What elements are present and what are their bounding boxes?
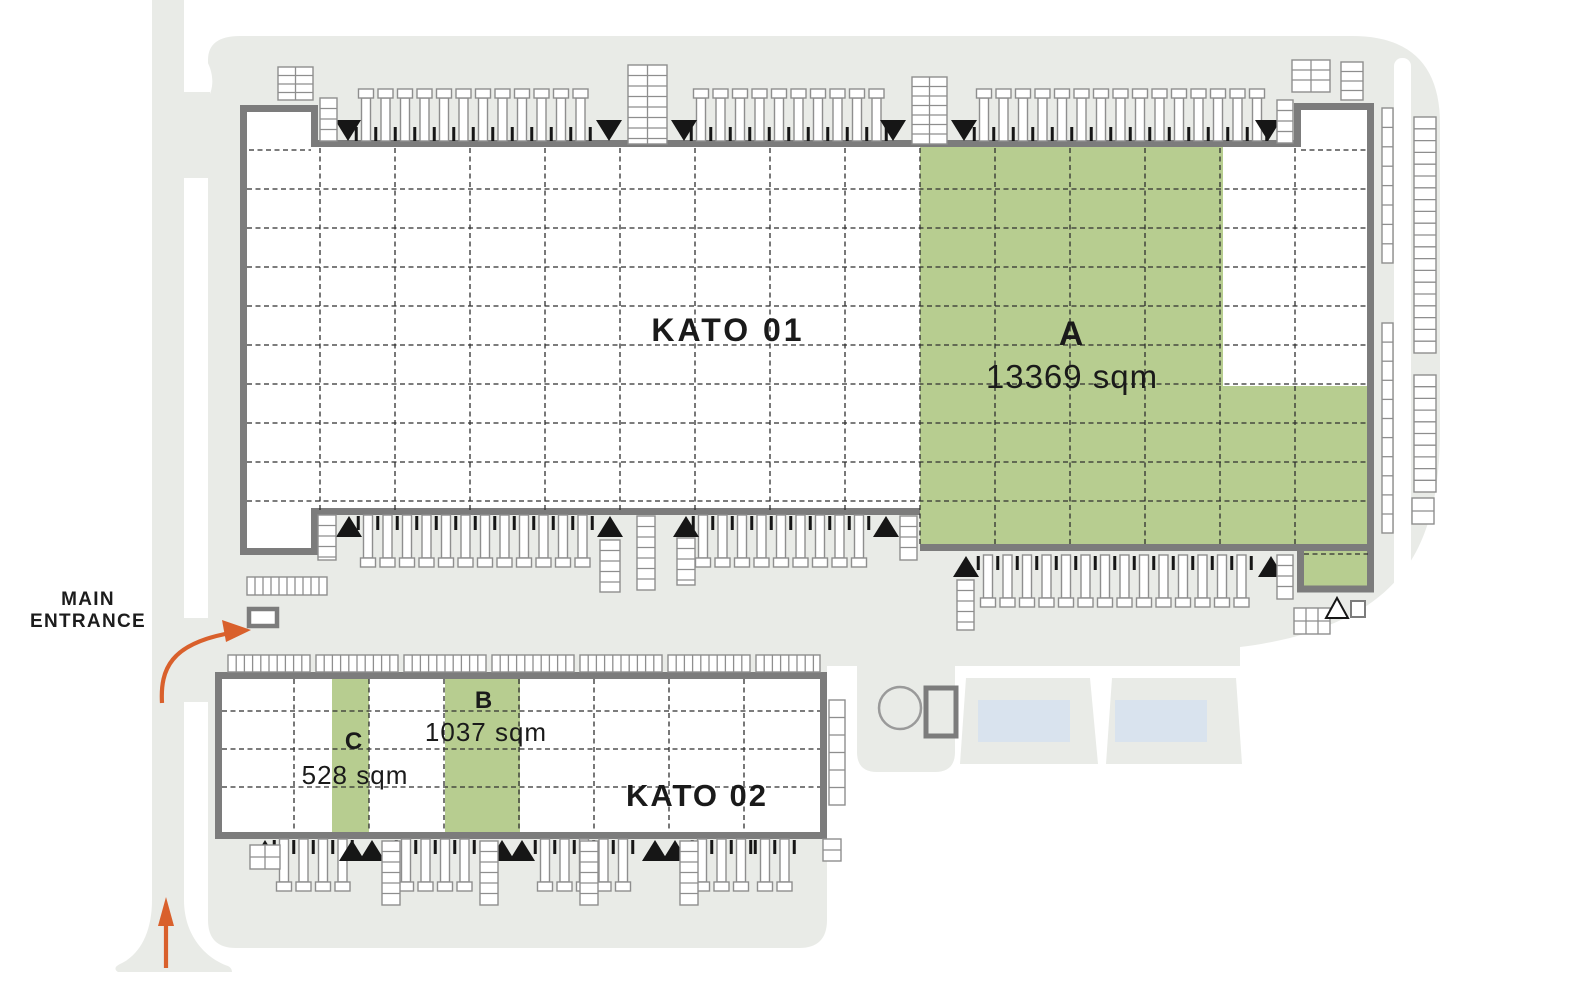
dock-tick-icon (474, 516, 477, 530)
dock-tick-icon (826, 127, 829, 141)
dock-bay-cap-icon (1230, 89, 1245, 98)
parking-hatch (600, 540, 620, 592)
dock-bay-icon (1233, 98, 1242, 141)
dock-tick-icon (1113, 556, 1116, 570)
dock-bay-cap-icon (573, 89, 588, 98)
dock-bay-cap-icon (734, 882, 749, 891)
dock-bay-icon (1077, 98, 1086, 141)
dock-bay-cap-icon (1059, 598, 1074, 607)
dock-bay-icon (1042, 555, 1051, 598)
dock-tick-icon (513, 516, 516, 530)
dock-bay-cap-icon (1113, 89, 1128, 98)
dock-bay-cap-icon (1211, 89, 1226, 98)
dock-bay-cap-icon (852, 558, 867, 567)
dock-bay-icon (578, 515, 587, 558)
dock-bay-cap-icon (1039, 598, 1054, 607)
dock-bay-cap-icon (476, 89, 491, 98)
dock-bay-icon (599, 839, 608, 882)
dock-tick-icon (1191, 556, 1194, 570)
dock-bay-icon (999, 98, 1008, 141)
dock-bay-icon (816, 515, 825, 558)
dock-bay-cap-icon (556, 558, 571, 567)
dock-bay-cap-icon (554, 89, 569, 98)
reservoir-1 (978, 700, 1070, 742)
dock-bay-icon (1062, 555, 1071, 598)
dock-tick-icon (1187, 127, 1190, 141)
dock-bay-cap-icon (735, 558, 750, 567)
dock-tick-icon (748, 127, 751, 141)
dock-bay-cap-icon (616, 882, 631, 891)
dock-bay-icon (1155, 98, 1164, 141)
site-plan: KATO 01 A 13369 sqm B 1037 sqm C 528 sqm… (0, 0, 1574, 998)
dock-bay-cap-icon (811, 89, 826, 98)
entrance-label-line1: MAIN (61, 589, 115, 610)
dock-tick-icon (809, 516, 812, 530)
dock-tick-icon (493, 516, 496, 530)
dock-bay-icon (1218, 555, 1227, 598)
dock-tick-icon (1129, 127, 1132, 141)
unit-c-area-label: 528 sqm (302, 760, 409, 790)
dock-bay-icon (835, 515, 844, 558)
site-plan-canvas: KATO 01 A 13369 sqm B 1037 sqm C 528 sqm… (0, 0, 1574, 998)
dock-bay-icon (421, 839, 430, 882)
dock-bay-cap-icon (575, 558, 590, 567)
dock-tick-icon (754, 840, 757, 854)
dock-bay-cap-icon (696, 558, 711, 567)
dock-bay-cap-icon (1000, 598, 1015, 607)
dock-bay-icon (872, 98, 881, 141)
dock-bay-icon (1023, 555, 1032, 598)
dock-tick-icon (292, 840, 295, 854)
dock-bay-icon (736, 98, 745, 141)
dock-tick-icon (1031, 127, 1034, 141)
dock-tick-icon (992, 127, 995, 141)
dock-bay-icon (1159, 555, 1168, 598)
dock-bay-icon (420, 98, 429, 141)
dock-bay-icon (518, 98, 527, 141)
dock-bay-cap-icon (378, 89, 393, 98)
dock-tick-icon (331, 840, 334, 854)
dock-bay-icon (855, 515, 864, 558)
dock-tick-icon (612, 840, 615, 854)
dock-tick-icon (750, 516, 753, 530)
dock-bay-cap-icon (296, 882, 311, 891)
dock-tick-icon (711, 516, 714, 530)
dock-tick-icon (846, 127, 849, 141)
dock-tick-icon (1172, 556, 1175, 570)
dock-bay-icon (1097, 98, 1106, 141)
dock-bay-cap-icon (1234, 598, 1249, 607)
dock-bay-icon (699, 515, 708, 558)
dock-bay-cap-icon (1016, 89, 1031, 98)
dock-bay-cap-icon (733, 89, 748, 98)
dock-bay-cap-icon (1020, 598, 1035, 607)
dock-tick-icon (996, 556, 999, 570)
dock-tick-icon (770, 516, 773, 530)
dock-bay-cap-icon (1152, 89, 1167, 98)
dock-tick-icon (729, 127, 732, 141)
dock-bay-icon (537, 98, 546, 141)
dock-tick-icon (1133, 556, 1136, 570)
dock-bay-cap-icon (1133, 89, 1148, 98)
unit-a-area-label: 13369 sqm (986, 358, 1158, 395)
dock-tick-icon (828, 516, 831, 530)
dock-bay-icon (1194, 98, 1203, 141)
dock-bay-cap-icon (869, 89, 884, 98)
dock-bay-icon (520, 515, 529, 558)
dock-bay-icon (1101, 555, 1110, 598)
dock-tick-icon (1090, 127, 1093, 141)
dock-bay-cap-icon (752, 89, 767, 98)
dock-bay-icon (479, 98, 488, 141)
dock-bay-cap-icon (457, 882, 472, 891)
dock-tick-icon (511, 127, 514, 141)
dock-bay-icon (383, 515, 392, 558)
corner-square-marker (1351, 601, 1365, 617)
dock-bay-icon (853, 98, 862, 141)
dock-tick-icon (977, 556, 980, 570)
dock-bay-icon (441, 839, 450, 882)
dock-tick-icon (491, 127, 494, 141)
kato-02-label: KATO 02 (626, 778, 768, 813)
dock-tick-icon (374, 127, 377, 141)
dock-tick-icon (1152, 556, 1155, 570)
dock-bay-icon (539, 515, 548, 558)
dock-bay-cap-icon (714, 882, 729, 891)
dock-bay-icon (280, 839, 289, 882)
dock-bay-icon (780, 839, 789, 882)
dock-tick-icon (396, 516, 399, 530)
dock-bay-cap-icon (536, 558, 551, 567)
dock-tick-icon (1109, 127, 1112, 141)
parking-strip (756, 655, 820, 672)
dock-bay-icon (442, 515, 451, 558)
dock-tick-icon (710, 840, 713, 854)
dock-tick-icon (473, 840, 476, 854)
dock-bay-cap-icon (438, 882, 453, 891)
unit-c-label: C (345, 728, 363, 755)
dock-bay-cap-icon (478, 558, 493, 567)
dock-bay-icon (362, 98, 371, 141)
dock-bay-cap-icon (1250, 89, 1265, 98)
dock-bay-cap-icon (1176, 598, 1191, 607)
dock-bay-icon (718, 515, 727, 558)
dock-bay-cap-icon (400, 558, 415, 567)
dock-bay-cap-icon (772, 89, 787, 98)
dock-bay-icon (777, 515, 786, 558)
dock-tick-icon (709, 127, 712, 141)
parking-hatch (1277, 555, 1293, 599)
dock-bay-icon (500, 515, 509, 558)
parking-hatch (677, 538, 695, 585)
dock-bay-cap-icon (419, 558, 434, 567)
dock-bay-icon (557, 98, 566, 141)
dock-bay-icon (717, 839, 726, 882)
dock-bay-cap-icon (361, 558, 376, 567)
dock-tick-icon (569, 127, 572, 141)
dock-bay-icon (737, 839, 746, 882)
dock-tick-icon (730, 840, 733, 854)
dock-tick-icon (573, 840, 576, 854)
dock-bay-cap-icon (359, 89, 374, 98)
dock-bay-icon (1019, 98, 1028, 141)
dock-bay-cap-icon (813, 558, 828, 567)
dock-bay-icon (319, 839, 328, 882)
dock-bay-icon (460, 839, 469, 882)
dock-bay-cap-icon (1078, 598, 1093, 607)
dock-tick-icon (1250, 556, 1253, 570)
dock-bay-icon (761, 839, 770, 882)
dock-bay-icon (1140, 555, 1149, 598)
dock-bay-icon (299, 839, 308, 882)
dock-bay-icon (1058, 98, 1067, 141)
dock-tick-icon (571, 516, 574, 530)
dock-bay-cap-icon (277, 882, 292, 891)
dock-bay-icon (1003, 555, 1012, 598)
dock-bay-icon (1179, 555, 1188, 598)
unit-c[interactable] (332, 679, 369, 832)
dock-bay-icon (403, 515, 412, 558)
dock-tick-icon (1168, 127, 1171, 141)
dock-bay-icon (1175, 98, 1184, 141)
dock-bay-icon (1198, 555, 1207, 598)
dock-bay-icon (619, 839, 628, 882)
dock-bay-cap-icon (418, 882, 433, 891)
dock-bay-cap-icon (437, 89, 452, 98)
dock-tick-icon (357, 516, 360, 530)
dock-bay-icon (833, 98, 842, 141)
dock-tick-icon (553, 840, 556, 854)
dock-bay-icon (1237, 555, 1246, 598)
dock-bay-cap-icon (439, 558, 454, 567)
dock-bay-cap-icon (996, 89, 1011, 98)
dock-bay-cap-icon (1035, 89, 1050, 98)
dock-bay-cap-icon (458, 558, 473, 567)
dock-tick-icon (1074, 556, 1077, 570)
dock-bay-cap-icon (515, 89, 530, 98)
dock-bay-cap-icon (777, 882, 792, 891)
dock-bay-icon (560, 839, 569, 882)
dock-tick-icon (550, 127, 553, 141)
dock-bay-icon (402, 839, 411, 882)
dock-tick-icon (589, 127, 592, 141)
parking-hatch (900, 516, 917, 560)
dock-tick-icon (793, 840, 796, 854)
dock-tick-icon (1070, 127, 1073, 141)
dock-bay-icon (1214, 98, 1223, 141)
dock-tick-icon (1246, 127, 1249, 141)
dock-tick-icon (376, 516, 379, 530)
dock-bay-icon (698, 839, 707, 882)
dock-bay-icon (1120, 555, 1129, 598)
dock-bay-cap-icon (1117, 598, 1132, 607)
dock-tick-icon (1051, 127, 1054, 141)
dock-bay-cap-icon (1137, 598, 1152, 607)
dock-bay-cap-icon (1098, 598, 1113, 607)
entrance-label-line2: ENTRANCE (30, 611, 146, 632)
dock-bay-cap-icon (1055, 89, 1070, 98)
dock-bay-cap-icon (316, 882, 331, 891)
dock-bay-cap-icon (694, 89, 709, 98)
dock-bay-cap-icon (1191, 89, 1206, 98)
dock-bay-icon (814, 98, 823, 141)
dock-bay-icon (775, 98, 784, 141)
dock-bay-icon (1253, 98, 1262, 141)
dock-bay-icon (422, 515, 431, 558)
dock-bay-cap-icon (398, 89, 413, 98)
building-kato-01: KATO 01 A 13369 sqm (244, 60, 1437, 634)
dock-bay-cap-icon (715, 558, 730, 567)
dock-bay-icon (757, 515, 766, 558)
dock-tick-icon (552, 516, 555, 530)
dock-tick-icon (415, 516, 418, 530)
dock-bay-cap-icon (380, 558, 395, 567)
dock-bay-icon (984, 555, 993, 598)
yard-lobe-tank (857, 640, 955, 772)
dock-tick-icon (789, 516, 792, 530)
dock-tick-icon (807, 127, 810, 141)
unit-a-label: A (1059, 315, 1086, 353)
dock-bay-icon (459, 98, 468, 141)
dock-bay-cap-icon (981, 598, 996, 607)
dock-tick-icon (414, 840, 417, 854)
dock-bay-icon (796, 515, 805, 558)
dock-tick-icon (731, 516, 734, 530)
dock-bay-cap-icon (456, 89, 471, 98)
dock-tick-icon (413, 127, 416, 141)
dock-bay-icon (980, 98, 989, 141)
dock-bay-icon (576, 98, 585, 141)
dock-bay-cap-icon (497, 558, 512, 567)
dock-bay-cap-icon (495, 89, 510, 98)
dock-bay-icon (1116, 98, 1125, 141)
dock-bay-cap-icon (1195, 598, 1210, 607)
dock-bay-cap-icon (832, 558, 847, 567)
dock-bay-cap-icon (774, 558, 789, 567)
dock-bay-icon (794, 98, 803, 141)
dock-bay-icon (1136, 98, 1145, 141)
dock-tick-icon (433, 127, 436, 141)
road-connector-entrance (184, 618, 210, 702)
unit-b-area-label: 1037 sqm (425, 717, 547, 747)
dock-bay-cap-icon (538, 882, 553, 891)
dock-bay-icon (559, 515, 568, 558)
dock-bay-cap-icon (850, 89, 865, 98)
reservoir-2 (1115, 700, 1207, 742)
dock-bay-icon (461, 515, 470, 558)
dock-bay-icon (697, 98, 706, 141)
dock-tick-icon (749, 840, 752, 854)
dock-tick-icon (1211, 556, 1214, 570)
dock-bay-icon (716, 98, 725, 141)
parking-hatch (1382, 323, 1393, 533)
dock-tick-icon (1016, 556, 1019, 570)
dock-bay-icon (498, 98, 507, 141)
dock-bay-cap-icon (1172, 89, 1187, 98)
dock-bay-cap-icon (791, 89, 806, 98)
dock-bay-cap-icon (793, 558, 808, 567)
dock-tick-icon (434, 840, 437, 854)
dock-tick-icon (532, 516, 535, 530)
dock-bay-cap-icon (1156, 598, 1171, 607)
dock-bay-icon (541, 839, 550, 882)
dock-bay-icon (440, 98, 449, 141)
dock-tick-icon (453, 840, 456, 854)
dock-bay-cap-icon (399, 882, 414, 891)
dock-tick-icon (848, 516, 851, 530)
dock-bay-icon (381, 98, 390, 141)
dock-bay-cap-icon (713, 89, 728, 98)
dock-tick-icon (1148, 127, 1151, 141)
kato-01-label: KATO 01 (651, 312, 804, 348)
dock-tick-icon (1207, 127, 1210, 141)
dock-tick-icon (454, 516, 457, 530)
dock-tick-icon (394, 127, 397, 141)
dock-bay-cap-icon (830, 89, 845, 98)
dock-bay-cap-icon (1094, 89, 1109, 98)
dock-tick-icon (867, 516, 870, 530)
entrance-gate (249, 609, 277, 626)
dock-bay-icon (401, 98, 410, 141)
dock-tick-icon (1226, 127, 1229, 141)
dock-tick-icon (534, 840, 537, 854)
dock-bay-cap-icon (754, 558, 769, 567)
dock-bay-cap-icon (335, 882, 350, 891)
dock-bay-icon (364, 515, 373, 558)
dock-bay-icon (755, 98, 764, 141)
dock-tick-icon (787, 127, 790, 141)
dock-tick-icon (591, 516, 594, 530)
unit-b-label: B (475, 687, 493, 714)
dock-bay-cap-icon (417, 89, 432, 98)
dock-tick-icon (973, 127, 976, 141)
road-connector-top (184, 92, 210, 178)
dock-bay-cap-icon (1215, 598, 1230, 607)
dock-bay-cap-icon (1074, 89, 1089, 98)
dock-bay-icon (1081, 555, 1090, 598)
dock-tick-icon (1094, 556, 1097, 570)
dock-tick-icon (773, 840, 776, 854)
dock-bay-cap-icon (977, 89, 992, 98)
dock-tick-icon (312, 840, 315, 854)
dock-tick-icon (631, 840, 634, 854)
parking-hatch (318, 515, 336, 560)
dock-bay-cap-icon (557, 882, 572, 891)
dock-tick-icon (1012, 127, 1015, 141)
road-gap-right (1394, 58, 1411, 628)
dock-tick-icon (472, 127, 475, 141)
dock-tick-icon (768, 127, 771, 141)
dock-bay-cap-icon (758, 882, 773, 891)
dock-bay-icon (738, 515, 747, 558)
dock-bay-icon (481, 515, 490, 558)
dock-tick-icon (530, 127, 533, 141)
dock-tick-icon (1230, 556, 1233, 570)
dock-bay-cap-icon (534, 89, 549, 98)
dock-tick-icon (435, 516, 438, 530)
dock-tick-icon (1055, 556, 1058, 570)
dock-tick-icon (865, 127, 868, 141)
dock-tick-icon (452, 127, 455, 141)
dock-tick-icon (1035, 556, 1038, 570)
dock-bay-cap-icon (517, 558, 532, 567)
dock-bay-icon (1038, 98, 1047, 141)
